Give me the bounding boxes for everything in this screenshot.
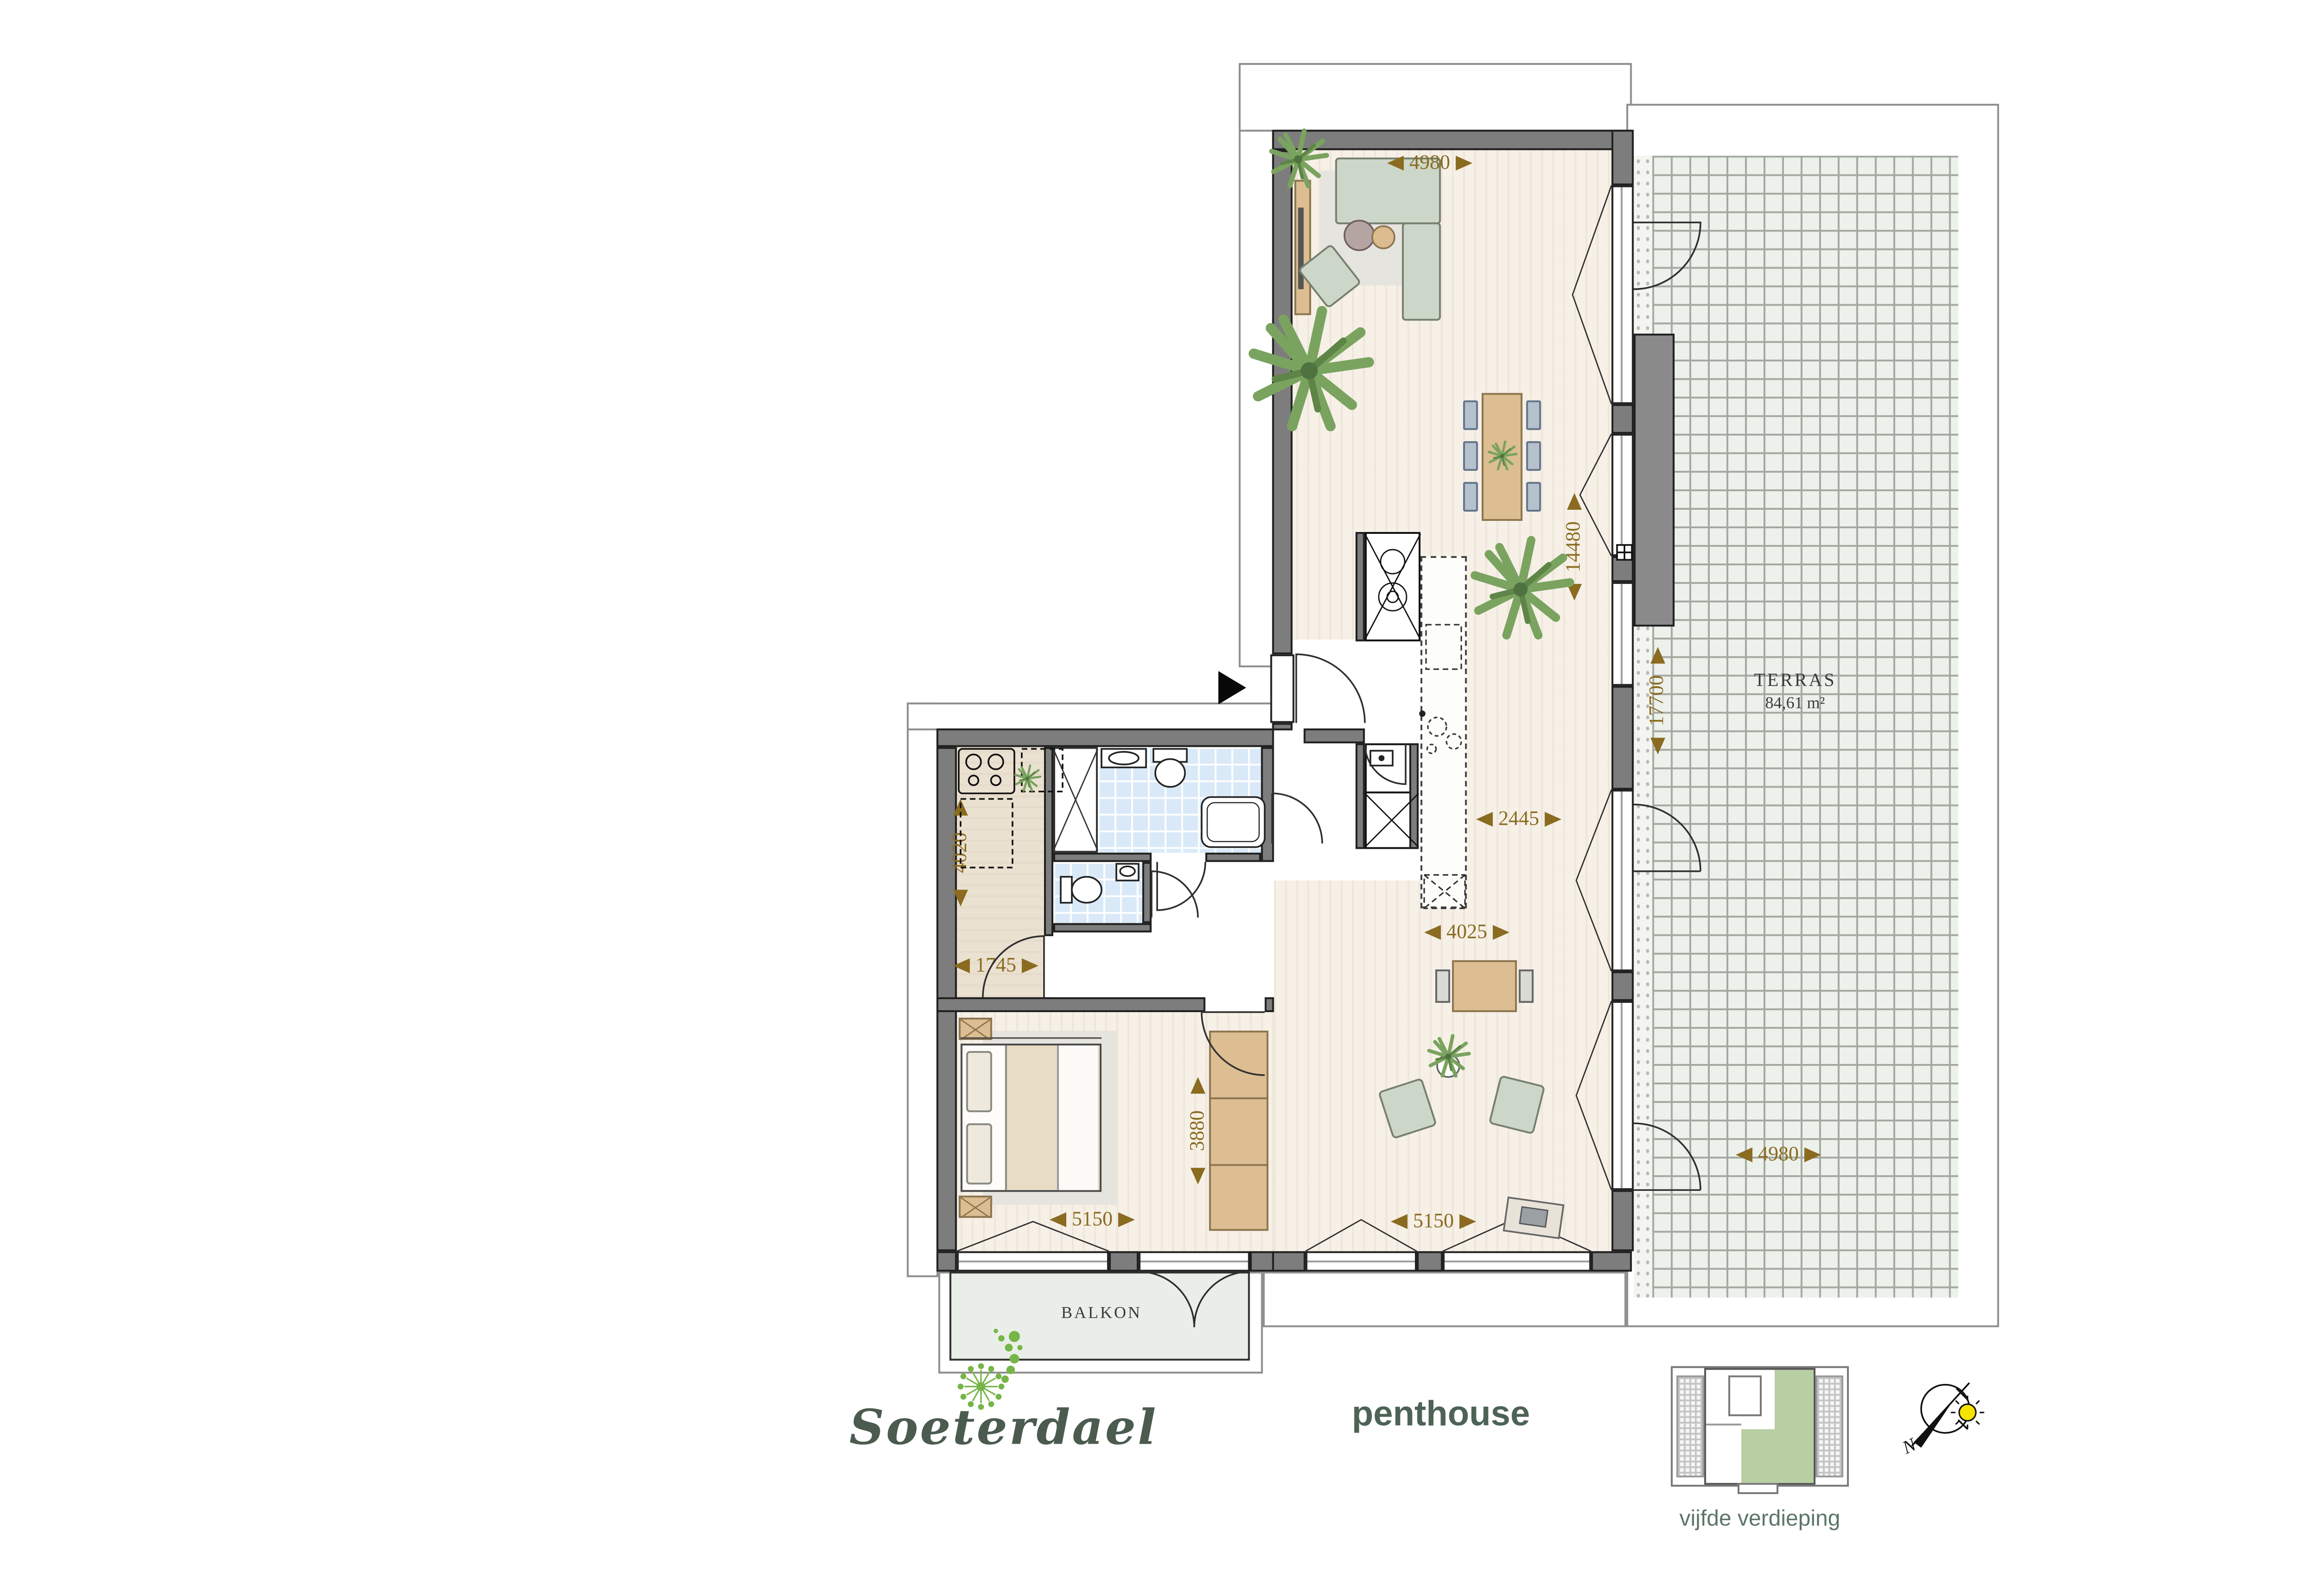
wall: [1272, 130, 1632, 150]
arrow-right-icon: [1118, 1212, 1135, 1227]
dim-value: 3880: [1187, 1110, 1209, 1151]
dim-value: 1745: [976, 955, 1016, 977]
nightstand: [959, 1018, 992, 1040]
wall: [1044, 747, 1053, 936]
roof-edge-top: [1239, 63, 1632, 131]
arrow-right-icon: [1545, 812, 1561, 827]
arrow-up-icon: [953, 799, 968, 816]
dim-value: 4980: [1758, 1144, 1799, 1166]
wall: [1612, 686, 1634, 789]
wall: [1612, 404, 1634, 434]
balcony-door: [1139, 1251, 1250, 1271]
dim-lounge-width: 4025: [1424, 921, 1509, 944]
arrow-left-icon: [953, 958, 970, 973]
wardrobe-divider: [1209, 1097, 1268, 1099]
floor-locator-plan: [1671, 1366, 1849, 1487]
dining-chair: [1463, 401, 1478, 430]
dining-table: [1482, 393, 1522, 521]
terrace-window: [1612, 434, 1634, 556]
locator-core: [1728, 1376, 1762, 1416]
dim-value: 2445: [1498, 808, 1539, 831]
wall: [1417, 1251, 1443, 1271]
wall: [1265, 997, 1274, 1012]
wall: [1356, 743, 1365, 849]
dining-chair: [1526, 401, 1541, 430]
dim-value: 17700: [1647, 675, 1669, 726]
dim-kitchen-passage: 2445: [1476, 808, 1561, 831]
tv-panel: [1298, 207, 1304, 289]
dim-utility-width: 1745: [953, 955, 1039, 977]
sofa-right-section: [1402, 222, 1441, 320]
sun-icon: [1951, 1396, 1984, 1429]
wall: [937, 997, 1206, 1012]
wardrobe: [1209, 1031, 1268, 1231]
arrow-right-icon: [1459, 1214, 1476, 1229]
dim-value: 5150: [1072, 1208, 1113, 1231]
logo-soeterdael: Soeterdael: [849, 1402, 1118, 1457]
arrow-down-icon: [1567, 584, 1582, 601]
lounge-table: [1452, 960, 1517, 1012]
arrow-up-icon: [1190, 1077, 1205, 1094]
wall: [1142, 862, 1151, 923]
arrow-left-icon: [1736, 1147, 1752, 1162]
shower-floor: [1053, 747, 1098, 852]
balcony-label: BALKON: [1053, 1303, 1150, 1321]
living-window: [1443, 1251, 1591, 1271]
wall: [1612, 130, 1634, 185]
wall: [1053, 853, 1151, 862]
wall: [937, 728, 1274, 747]
arrow-up-icon: [1567, 493, 1582, 510]
wall: [1205, 853, 1261, 862]
roof-edge-left: [1239, 63, 1274, 667]
wall: [1409, 743, 1419, 849]
arrow-left-icon: [1476, 812, 1493, 827]
roof-edge-wing-left: [907, 702, 939, 1277]
dim-living-width-top: 4980: [1387, 152, 1472, 174]
arrow-down-icon: [1190, 1168, 1205, 1184]
tech-closet: [1365, 532, 1420, 641]
compass-north-label: N: [1899, 1433, 1920, 1458]
floor-level-label: vijfde verdieping: [1649, 1505, 1871, 1531]
locator-terrace-left: [1677, 1376, 1704, 1477]
arrow-right-icon: [1022, 958, 1039, 973]
arrow-right-icon: [1804, 1147, 1821, 1162]
bathroom-floor: [1098, 747, 1261, 852]
wall: [1261, 747, 1274, 862]
wall: [1053, 923, 1151, 933]
pillow: [966, 1123, 992, 1184]
lounge-chair: [1435, 970, 1450, 1003]
wall: [1250, 1251, 1274, 1271]
unit-title: penthouse: [1339, 1396, 1543, 1437]
dining-chair: [1526, 441, 1541, 471]
bed-runner: [1057, 1045, 1098, 1190]
dim-utility-length: 4020: [946, 799, 976, 907]
terrace-window: [1612, 582, 1634, 686]
locator-stair-stub: [1738, 1483, 1778, 1494]
kitchen-island: [1420, 556, 1467, 908]
wardrobe-divider: [1209, 1164, 1268, 1166]
arrow-down-icon: [953, 890, 968, 907]
dim-terrace-length: 17700: [1643, 647, 1673, 754]
floorplan-page: TERRAS 84,61 m² BALKON 4980 14480 17700 …: [0, 0, 2315, 1596]
arrow-down-icon: [1651, 738, 1665, 754]
wall: [1612, 1190, 1634, 1251]
terrace-label: TERRAS 84,61 m²: [1736, 671, 1854, 712]
roof-edge-wing-top: [907, 702, 1274, 730]
terrace-window: [1612, 789, 1634, 971]
arrow-right-icon: [1456, 156, 1472, 170]
floorplan-canvas: TERRAS 84,61 m² BALKON 4980 14480 17700 …: [0, 0, 2315, 1596]
terrace-window: [1612, 185, 1634, 404]
arrow-right-icon: [1493, 925, 1509, 940]
compass-icon: N: [1899, 1383, 1984, 1458]
entrance-arrow-icon: [1218, 671, 1246, 704]
pillow: [966, 1051, 992, 1112]
locator-terrace-right: [1815, 1376, 1843, 1477]
terrace-wall-block: [1634, 334, 1675, 627]
dim-value: 4020: [950, 832, 972, 873]
dining-chair: [1463, 441, 1478, 471]
lounge-chair: [1519, 970, 1533, 1003]
dim-value: 14480: [1563, 521, 1585, 572]
arrow-left-icon: [1391, 1214, 1408, 1229]
bedroom-window: [957, 1251, 1109, 1271]
dim-wardrobe-length: 3880: [1183, 1077, 1213, 1184]
dim-bedroom-width: 5150: [1050, 1208, 1135, 1231]
living-window: [1306, 1251, 1417, 1271]
dim-value: 5150: [1413, 1210, 1454, 1233]
wall: [1304, 728, 1365, 743]
dim-living-width-bottom: 5150: [1391, 1210, 1476, 1233]
arrow-left-icon: [1387, 156, 1404, 170]
wall: [1272, 723, 1293, 730]
arrow-up-icon: [1651, 647, 1665, 663]
wall: [1272, 150, 1293, 654]
dim-value: 4980: [1409, 152, 1450, 174]
dining-chair: [1463, 482, 1478, 512]
arrow-left-icon: [1424, 925, 1441, 940]
toilet-room-floor: [1053, 862, 1142, 923]
dim-value: 4025: [1446, 921, 1487, 944]
wall: [1612, 556, 1634, 582]
locator-unit-highlight: [1741, 1429, 1775, 1483]
wall: [1591, 1251, 1632, 1271]
terrace-window: [1612, 1001, 1634, 1190]
wall: [1109, 1251, 1139, 1271]
wall: [1356, 532, 1365, 641]
arrow-left-icon: [1050, 1212, 1066, 1227]
locator-unit-highlight: [1775, 1370, 1814, 1483]
nightstand: [959, 1195, 992, 1218]
terrace-name: TERRAS: [1736, 671, 1854, 691]
terrace-area: 84,61 m²: [1736, 693, 1854, 712]
dim-living-length: 14480: [1559, 493, 1589, 601]
walkway-bottom: [1263, 1271, 1627, 1327]
locator-partition: [1706, 1424, 1741, 1426]
wall: [1612, 971, 1634, 1001]
entry-door-opening: [1270, 654, 1295, 723]
terrace-floor: [1652, 156, 1958, 1297]
wall: [937, 1251, 957, 1271]
dining-chair: [1526, 482, 1541, 512]
dim-terrace-width: 4980: [1736, 1144, 1821, 1166]
wall: [1272, 1251, 1306, 1271]
